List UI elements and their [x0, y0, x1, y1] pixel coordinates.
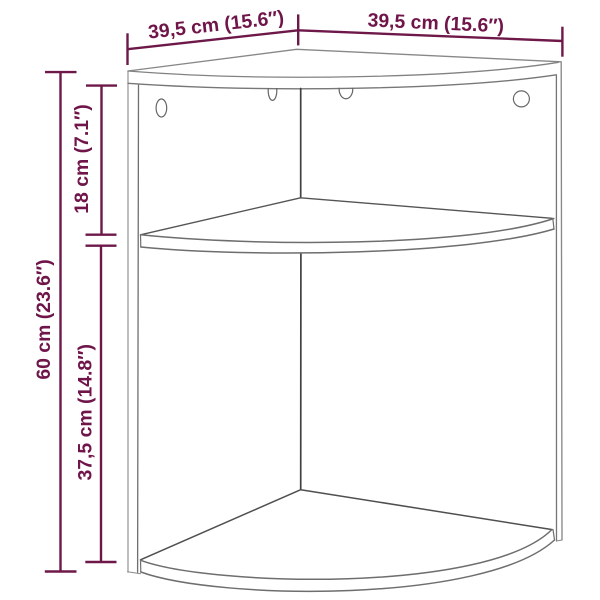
svg-text:37,5 cm (14.8″): 37,5 cm (14.8″) — [75, 344, 97, 480]
svg-text:60 cm (23.6″): 60 cm (23.6″) — [33, 259, 55, 379]
svg-text:18 cm (7.1″): 18 cm (7.1″) — [71, 104, 93, 214]
